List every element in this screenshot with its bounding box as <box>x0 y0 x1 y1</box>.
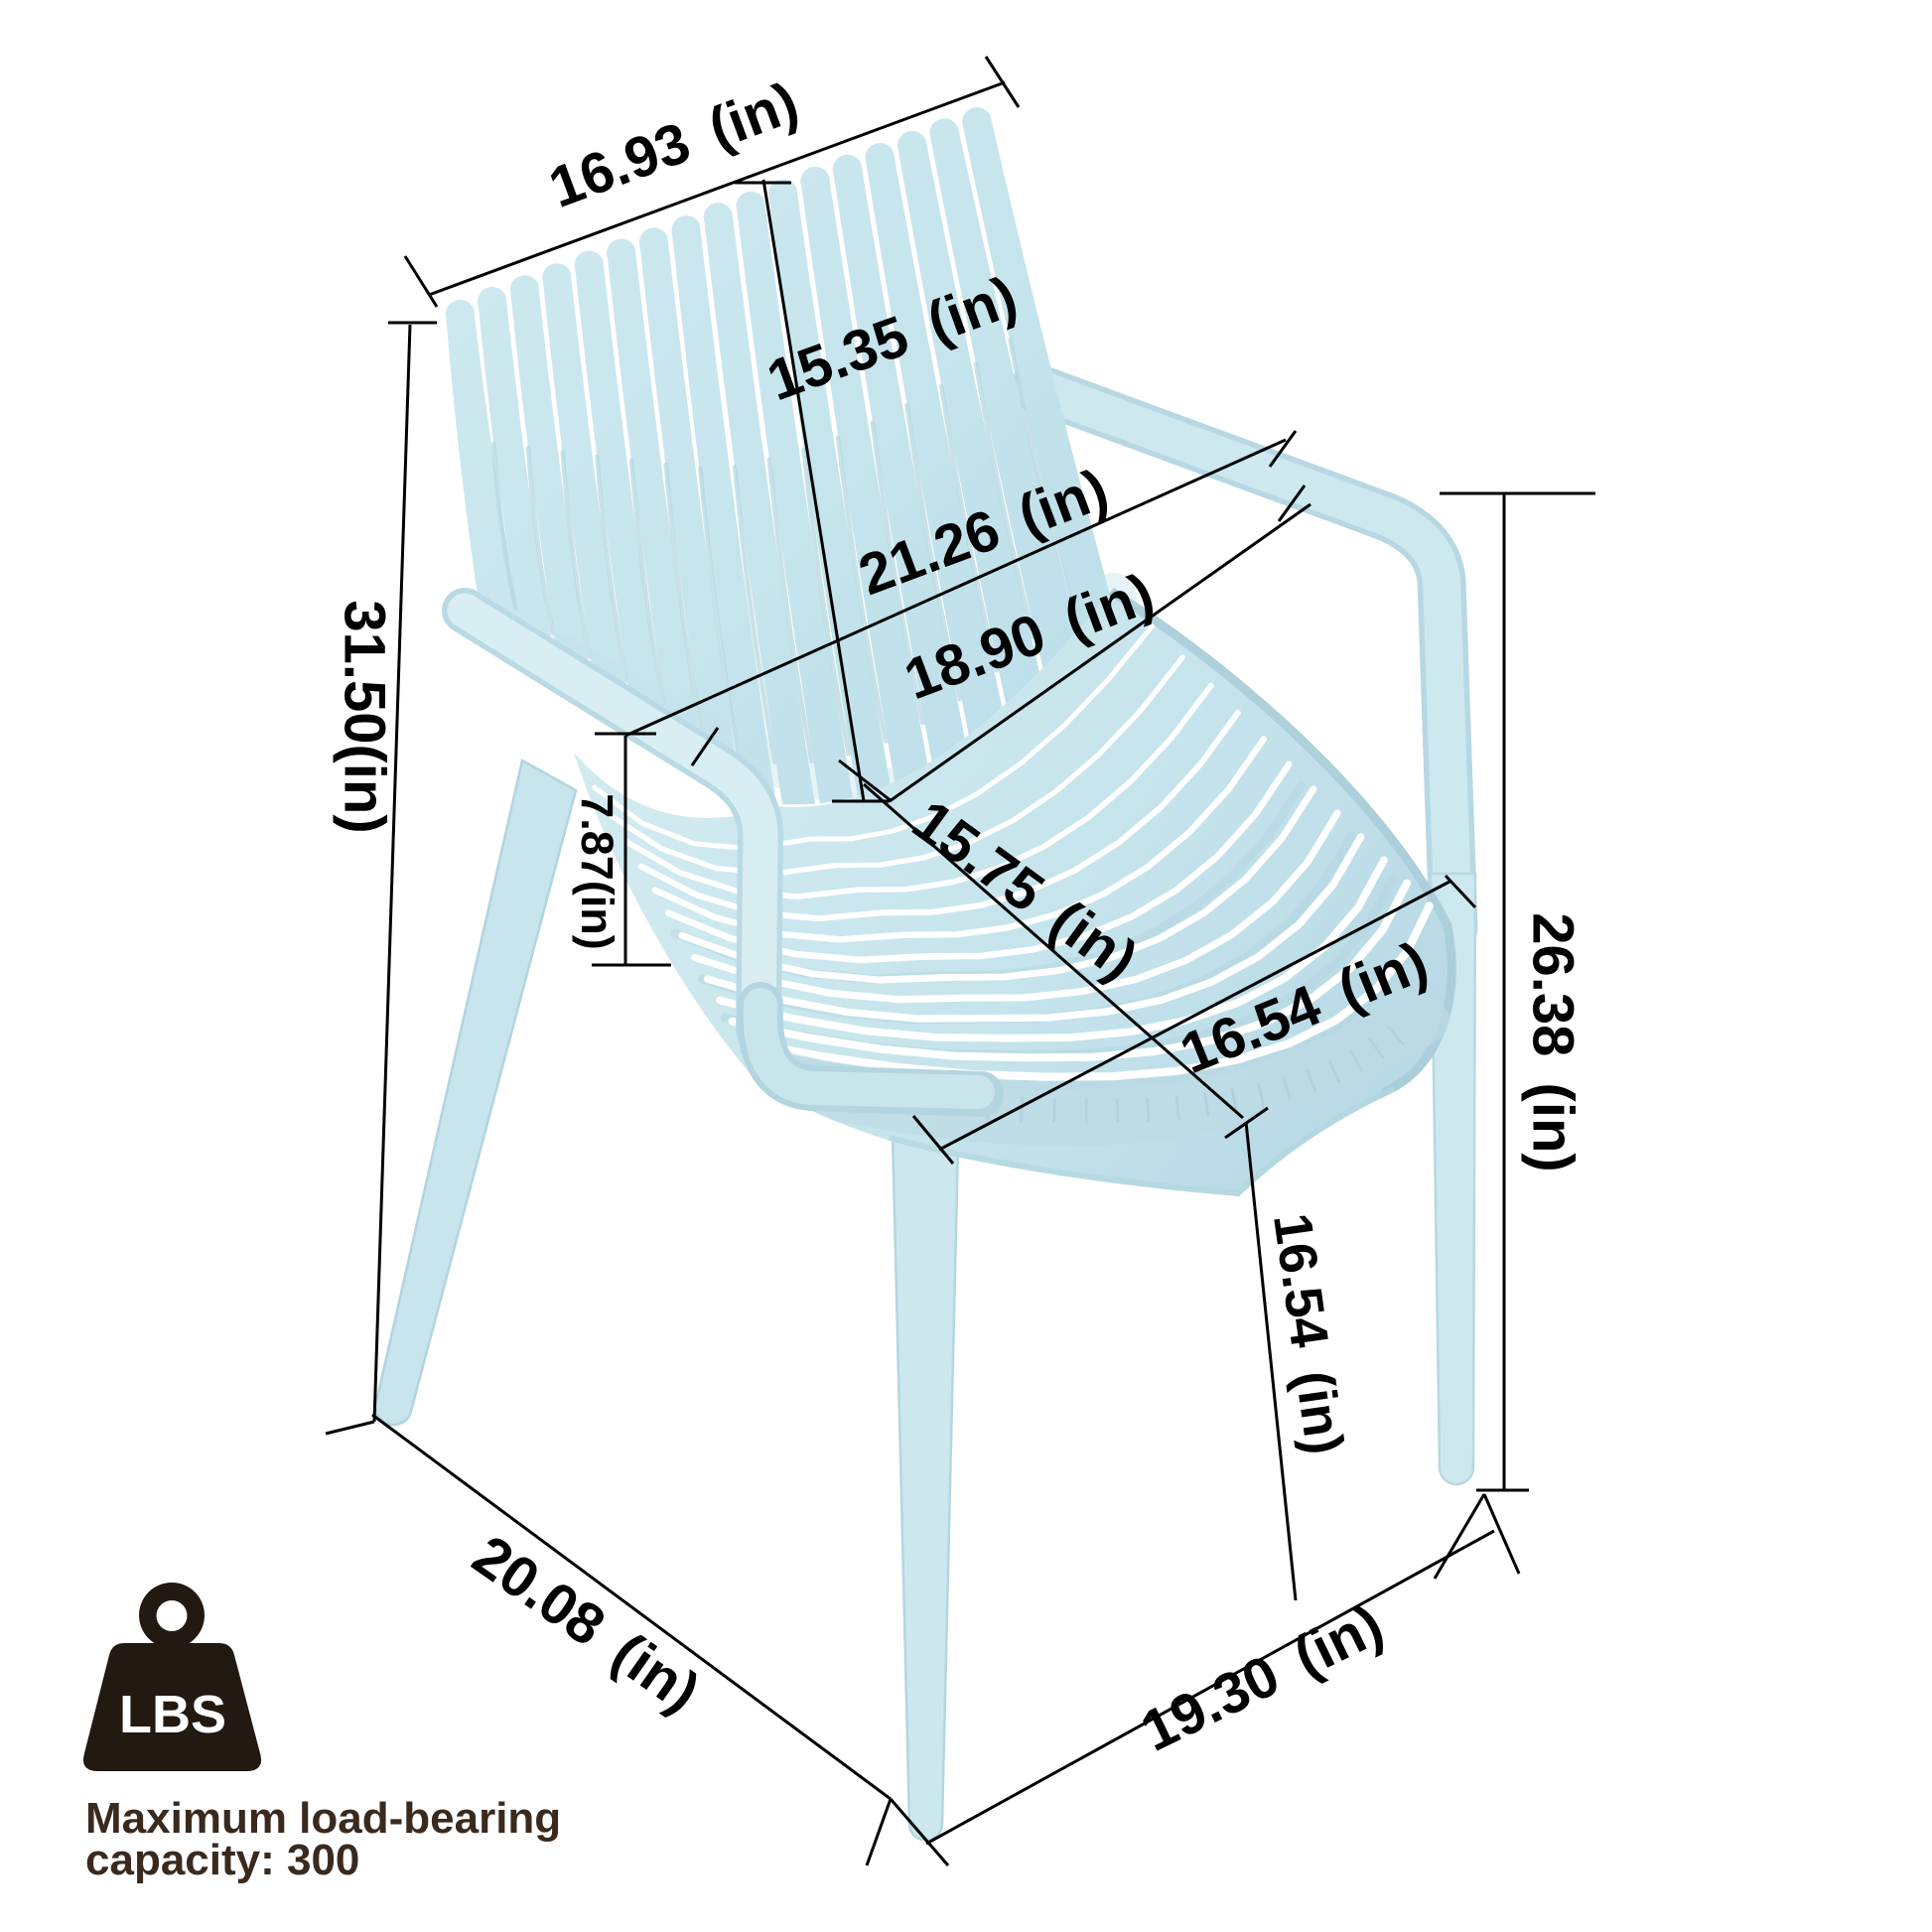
svg-text:26.38 (in): 26.38 (in) <box>1521 912 1586 1172</box>
svg-text:31.50(in): 31.50(in) <box>333 600 397 833</box>
svg-text:LBS: LBS <box>119 1685 226 1744</box>
svg-text:7.87(in): 7.87(in) <box>572 793 622 950</box>
svg-text:capacity: 300: capacity: 300 <box>85 1836 359 1884</box>
